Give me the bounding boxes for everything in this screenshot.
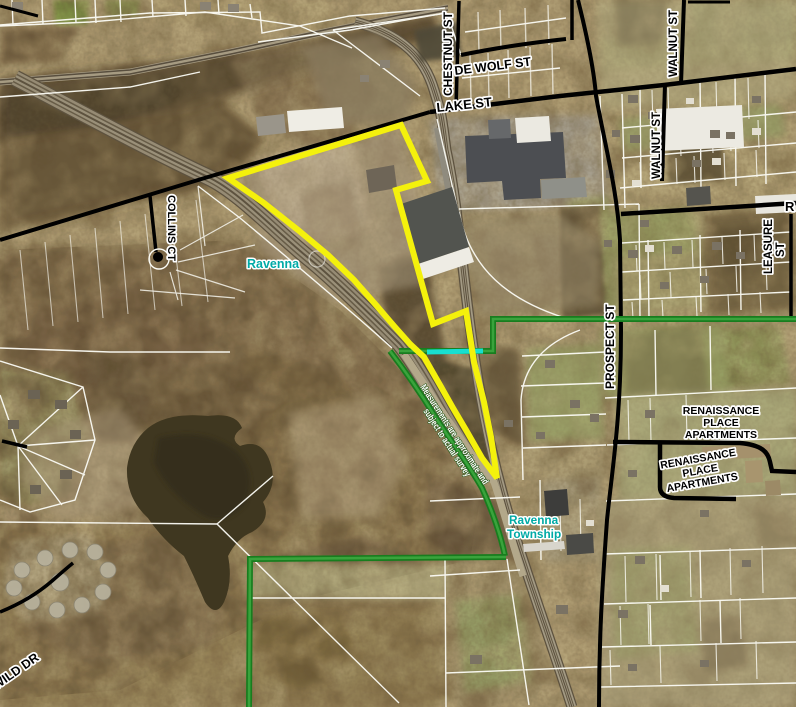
svg-text:RENAISSANCE: RENAISSANCE xyxy=(683,405,759,417)
svg-text:Ravenna: Ravenna xyxy=(247,257,300,271)
svg-text:CHESTNUT ST: CHESTNUT ST xyxy=(441,11,455,96)
svg-text:ST: ST xyxy=(775,242,787,257)
svg-text:COLLINS CT: COLLINS CT xyxy=(165,195,177,261)
svg-text:R: R xyxy=(785,199,795,214)
svg-text:LEASURE: LEASURE xyxy=(763,219,775,274)
svg-text:Township: Township xyxy=(507,527,561,541)
svg-text:Ravenna: Ravenna xyxy=(509,513,559,527)
svg-text:APARTMENTS: APARTMENTS xyxy=(685,429,757,441)
svg-text:PLACE: PLACE xyxy=(703,417,739,429)
svg-text:WALNUT ST: WALNUT ST xyxy=(668,10,680,77)
svg-text:PROSPECT ST: PROSPECT ST xyxy=(603,304,617,389)
svg-text:WALNUT ST: WALNUT ST xyxy=(651,112,663,179)
